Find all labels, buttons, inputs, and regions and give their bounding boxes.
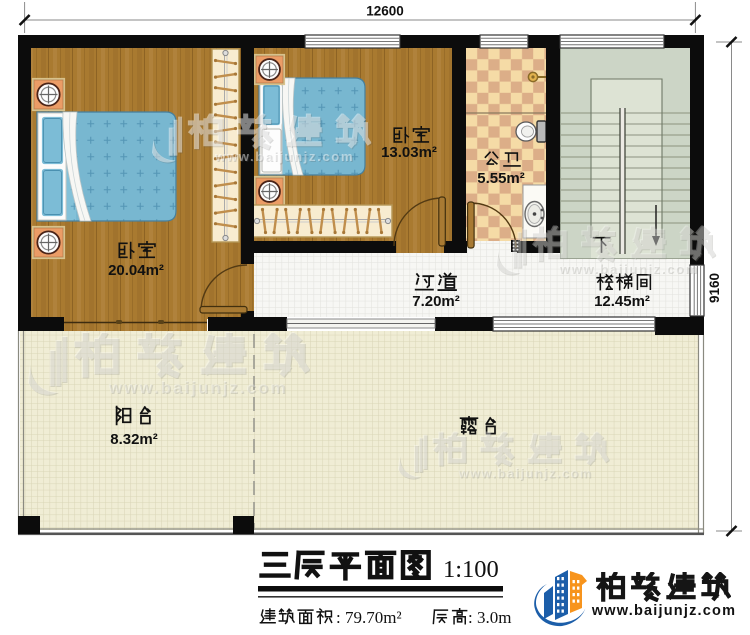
svg-text:12600: 12600 xyxy=(366,4,404,19)
svg-text:: 79.70m²: : 79.70m² xyxy=(336,608,402,627)
svg-text:5.55m²: 5.55m² xyxy=(477,170,525,187)
svg-text:7.20m²: 7.20m² xyxy=(412,293,460,310)
svg-text:1:100: 1:100 xyxy=(443,556,499,583)
svg-text:www.baijunjz.com: www.baijunjz.com xyxy=(108,378,288,397)
svg-text:12.45m²: 12.45m² xyxy=(594,293,650,310)
svg-text:8.32m²: 8.32m² xyxy=(110,431,158,448)
svg-text:www.baijunjz.com: www.baijunjz.com xyxy=(214,149,354,164)
svg-text:13.03m²: 13.03m² xyxy=(381,144,437,161)
svg-text:20.04m²: 20.04m² xyxy=(108,262,164,279)
svg-text:9160: 9160 xyxy=(707,273,722,303)
svg-text:www.baijunjz.com: www.baijunjz.com xyxy=(558,261,698,276)
svg-text:www.baijunjz.com: www.baijunjz.com xyxy=(457,465,592,480)
svg-text:www.baijunjz.com: www.baijunjz.com xyxy=(591,603,736,619)
svg-text:: 3.0m: : 3.0m xyxy=(468,608,511,627)
